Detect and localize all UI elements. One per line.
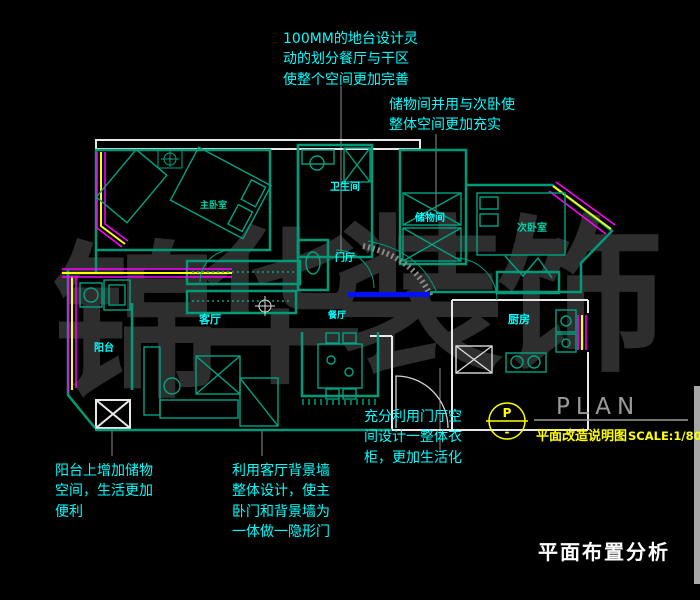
plan-title: PLAN [556,394,640,420]
label-dining: 餐厅 [327,309,346,321]
cad-screenshot-root: 锦 华 装 饰 [0,0,700,600]
label-kitchen: 厨房 [508,312,530,326]
label-second-bedroom: 次卧室 [517,221,547,234]
label-living: 客厅 [198,312,221,326]
label-master-bedroom: 主卧室 [200,199,227,211]
plan-marker-dash: - [505,425,510,439]
label-bathroom: 卫生间 [330,180,360,193]
label-hall: 门厅 [335,251,355,264]
highlight-blue-line [348,292,430,297]
note-platform: 100MM的地台设计灵 动的划分餐厅与干区 使整个空间更加完善 [283,29,418,90]
note-hall-wardrobe: 充分利用门厅空 间设计一整体衣 柜，更加生活化 [364,407,462,468]
plan-scale: SCALE:1/80 [628,429,700,443]
note-balcony-storage: 阳台上增加储物 空间，生活更加 便利 [55,461,153,522]
plan-title-block: P - PLAN 平面改造说明图 SCALE:1/80 [486,394,700,444]
datum-crosshair-icon [158,150,182,168]
watermark-edge-bar [694,386,700,584]
plan-subtitle: 平面改造说明图 [536,428,627,444]
plan-marker-letter: P [503,406,512,420]
note-living-wall: 利用客厅背景墙 整体设计，使主 卧门和背景墙为 一体做一隐形门 [232,461,330,542]
label-storage: 储物间 [414,211,445,224]
note-storage-room: 储物间并用与次卧使 整体空间更加充实 [389,95,515,136]
piano [96,150,166,223]
page-title: 平面布置分析 [538,536,670,565]
label-balcony: 阳台 [94,341,114,354]
watermark-char: 锦 [52,224,220,422]
